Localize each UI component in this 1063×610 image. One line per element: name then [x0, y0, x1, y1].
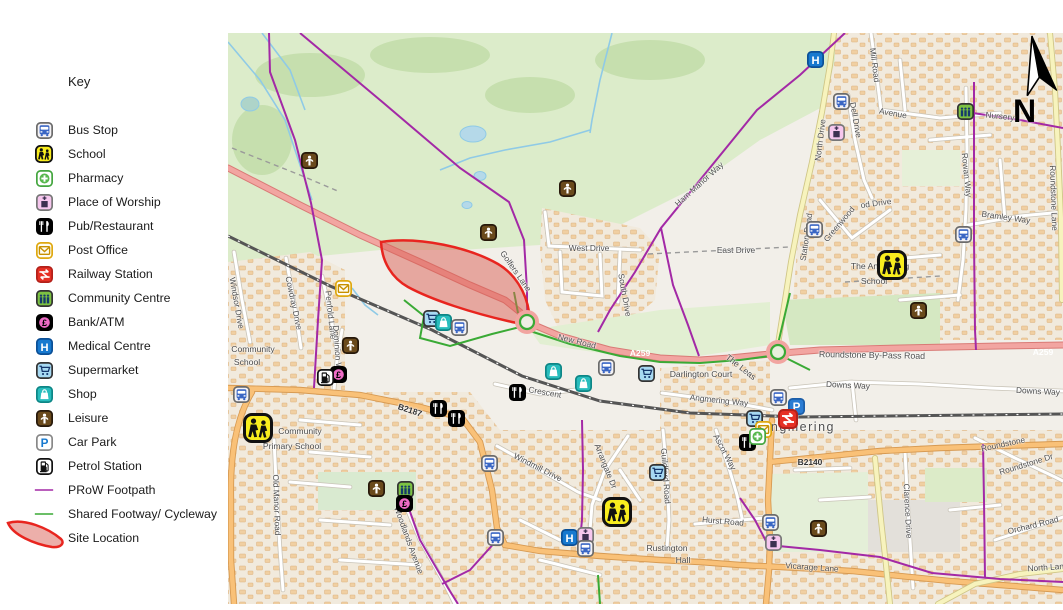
key-item-label: Place of Worship — [68, 195, 161, 209]
map-key: Key Bus StopSchoolPharmacyPlace of Worsh… — [0, 0, 228, 610]
key-item-leisure: Leisure — [0, 406, 228, 430]
place-of-worship-marker — [828, 124, 845, 141]
svg-text:H: H — [811, 54, 819, 66]
pharmacy-icon — [33, 167, 55, 189]
bus-stop-marker — [762, 514, 779, 531]
school-icon — [33, 143, 55, 165]
key-item-label: Site Location — [68, 531, 139, 545]
site-location-map: N CommunitySchoolWest DriveEast DriveGol… — [228, 33, 1063, 604]
key-item-label: Car Park — [68, 435, 117, 449]
bus-stop-marker — [481, 455, 498, 472]
pub-restaurant-marker — [430, 400, 447, 417]
bus-stop-marker — [770, 389, 787, 406]
bus-stop-marker — [577, 540, 594, 557]
place-of-worship-icon — [33, 191, 55, 213]
key-item-label: Bank/ATM — [68, 315, 125, 329]
site-location-icon — [4, 516, 68, 558]
school-marker — [602, 497, 632, 527]
leisure-marker — [810, 520, 827, 537]
key-title: Key — [68, 74, 90, 89]
key-item-label: Medical Centre — [68, 339, 151, 353]
bus-stop-marker — [487, 529, 504, 546]
key-item-bus-stop: Bus Stop — [0, 118, 228, 142]
car-park-icon: P — [33, 431, 55, 453]
key-item-label: Pharmacy — [68, 171, 123, 185]
svg-text:£: £ — [335, 369, 340, 379]
leisure-marker — [559, 180, 576, 197]
key-item-label: Bus Stop — [68, 123, 118, 137]
leisure-marker — [368, 480, 385, 497]
community-centre-icon — [33, 287, 55, 309]
key-item-medical-centre: HMedical Centre — [0, 334, 228, 358]
key-item-label: Post Office — [68, 243, 128, 257]
svg-text:H: H — [40, 341, 48, 353]
place-of-worship-marker — [765, 534, 782, 551]
medical-centre-marker: H — [561, 529, 578, 546]
key-item-site-location: Site Location — [0, 526, 228, 550]
key-item-label: Supermarket — [68, 363, 138, 377]
railway-station-marker — [778, 409, 798, 429]
bus-stop-marker — [806, 221, 823, 238]
school-marker — [243, 413, 273, 443]
key-item-label: Petrol Station — [68, 459, 142, 473]
bus-stop-marker — [598, 359, 615, 376]
bus-stop-marker — [955, 226, 972, 243]
shop-marker — [545, 363, 562, 380]
key-item-label: School — [68, 147, 106, 161]
svg-text:P: P — [40, 436, 48, 449]
svg-text:£: £ — [401, 498, 406, 508]
petrol-station-icon — [33, 455, 55, 477]
key-item-place-of-worship: Place of Worship — [0, 190, 228, 214]
post-office-marker — [335, 280, 352, 297]
map-markers: H££HP — [228, 33, 1063, 604]
petrol-station-marker — [317, 369, 334, 386]
key-item-petrol-station: Petrol Station — [0, 454, 228, 478]
prow-footpath-icon — [33, 479, 55, 501]
key-item-railway-station: Railway Station — [0, 262, 228, 286]
key-item-label: Shared Footway/ Cycleway — [68, 507, 217, 521]
key-item-label: Leisure — [68, 411, 108, 425]
leisure-marker — [910, 302, 927, 319]
key-item-shop: Shop — [0, 382, 228, 406]
key-item-school: School — [0, 142, 228, 166]
svg-text:£: £ — [41, 317, 46, 327]
pub-restaurant-marker — [509, 384, 526, 401]
bus-stop-marker — [233, 386, 250, 403]
community-centre-marker — [957, 103, 974, 120]
leisure-marker — [301, 152, 318, 169]
post-office-icon — [33, 239, 55, 261]
pub-restaurant-icon — [33, 215, 55, 237]
key-item-post-office: Post Office — [0, 238, 228, 262]
supermarket-marker — [649, 464, 666, 481]
svg-text:H: H — [565, 532, 573, 544]
key-item-bank-atm: £Bank/ATM — [0, 310, 228, 334]
supermarket-marker — [638, 365, 655, 382]
pharmacy-marker — [749, 428, 766, 445]
key-item-supermarket: Supermarket — [0, 358, 228, 382]
bus-stop-marker — [833, 93, 850, 110]
key-item-label: Pub/Restaurant — [68, 219, 153, 233]
key-item-car-park: PCar Park — [0, 430, 228, 454]
key-item-prow-footpath: PRoW Footpath — [0, 478, 228, 502]
key-item-pharmacy: Pharmacy — [0, 166, 228, 190]
school-marker — [877, 250, 907, 280]
shop-icon — [33, 383, 55, 405]
railway-station-icon — [33, 263, 55, 285]
medical-centre-icon: H — [33, 335, 55, 357]
shop-marker — [575, 375, 592, 392]
key-item-community-centre: Community Centre — [0, 286, 228, 310]
key-item-label: Railway Station — [68, 267, 153, 281]
shop-marker — [435, 314, 452, 331]
leisure-icon — [33, 407, 55, 429]
key-item-label: Shop — [68, 387, 97, 401]
pub-restaurant-marker — [448, 410, 465, 427]
bus-stop-marker — [451, 319, 468, 336]
supermarket-icon — [33, 359, 55, 381]
medical-centre-marker: H — [807, 51, 824, 68]
leisure-marker — [342, 337, 359, 354]
leisure-marker — [480, 224, 497, 241]
key-item-pub-restaurant: Pub/Restaurant — [0, 214, 228, 238]
bank-atm-marker: £ — [396, 495, 413, 512]
key-item-label: Community Centre — [68, 291, 171, 305]
bank-atm-icon: £ — [33, 311, 55, 333]
bus-stop-icon — [33, 119, 55, 141]
key-item-label: PRoW Footpath — [68, 483, 155, 497]
